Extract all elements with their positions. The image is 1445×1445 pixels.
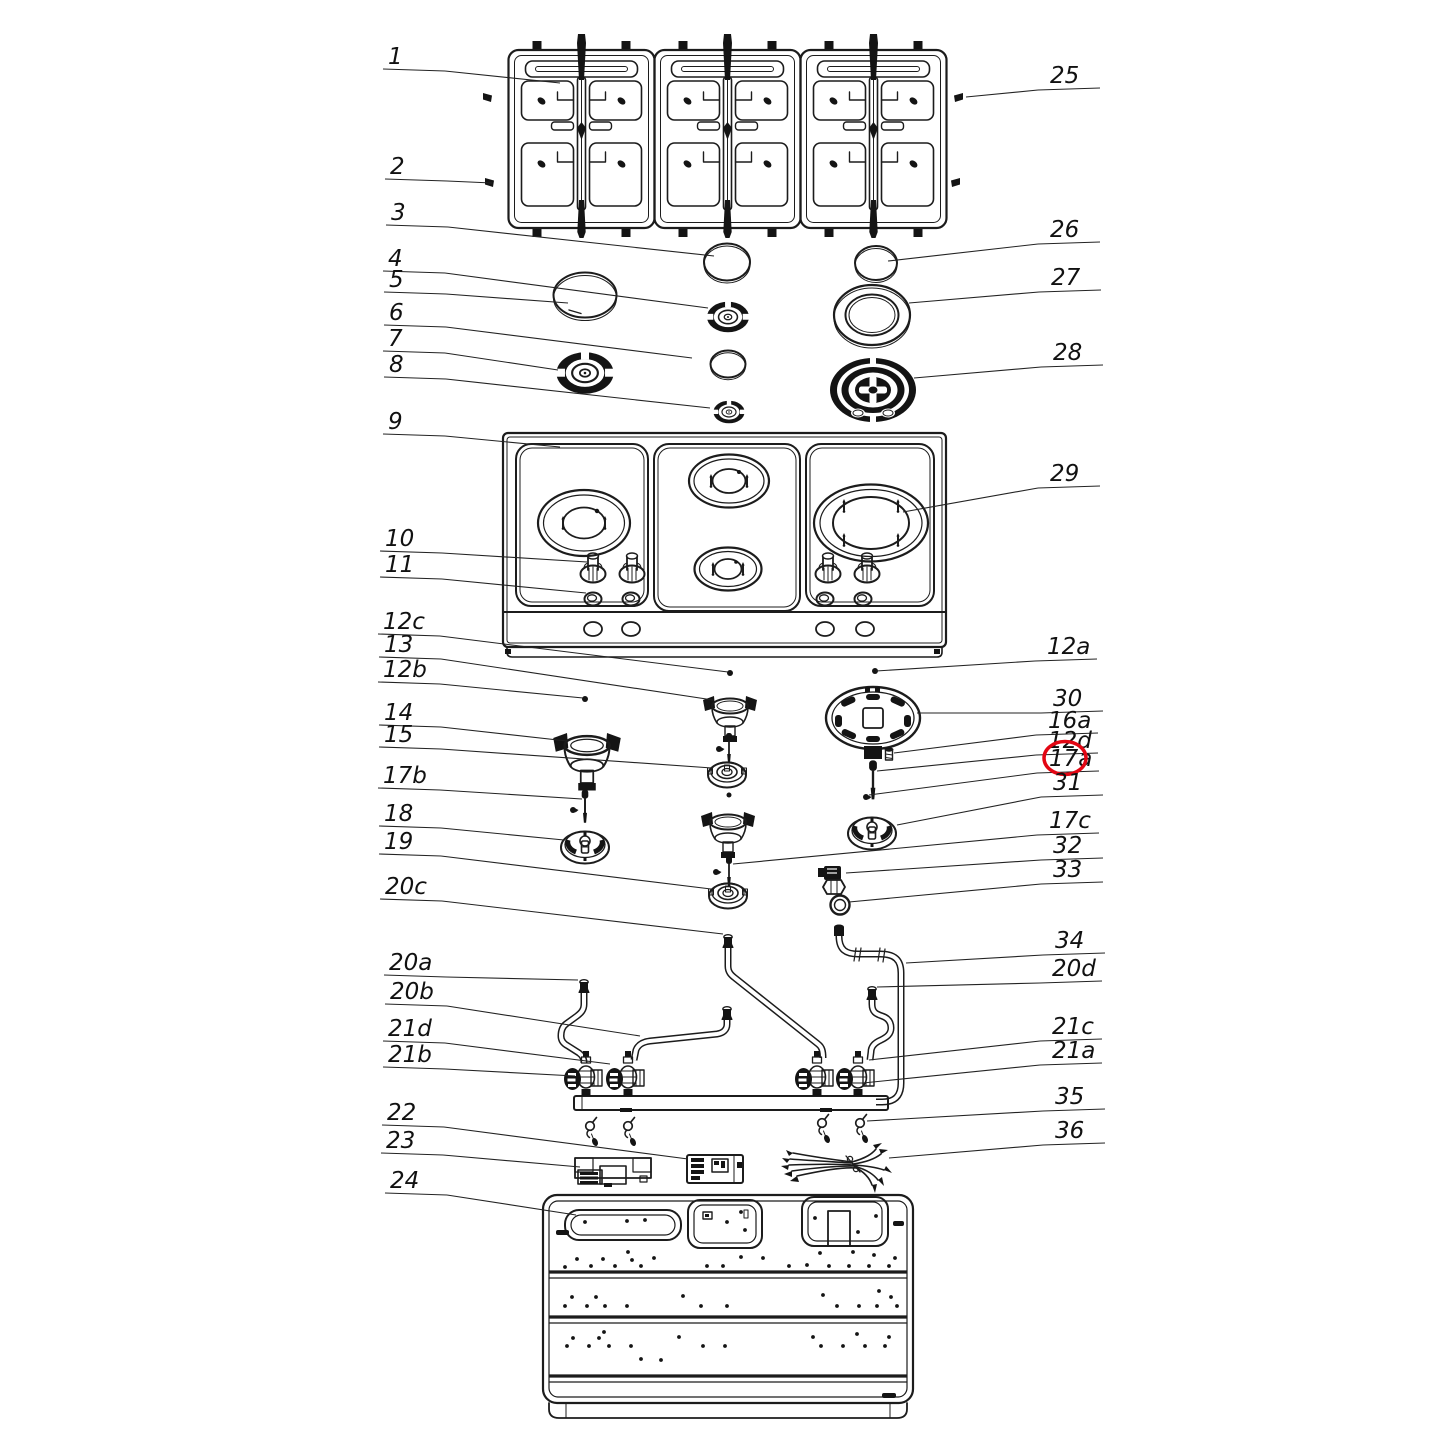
burner-pipe-20c (723, 935, 824, 1058)
venturi-body-auxiliary (701, 812, 755, 858)
clip-1 (586, 1118, 599, 1147)
clip-3 (818, 1115, 831, 1144)
elbow-fitting-32 (818, 866, 845, 894)
burner-base-31 (848, 818, 896, 850)
leader-line-32 (846, 860, 1041, 873)
wok-burner-base-30 (826, 687, 920, 759)
burner-cup-15 (708, 762, 747, 788)
electrode-pin-17b (582, 790, 589, 823)
part-label-34: 34 (1055, 928, 1084, 954)
leader-line-28 (914, 367, 1041, 378)
tray-center-emboss (688, 1200, 762, 1248)
leader-line-18 (441, 828, 564, 840)
manifold-rail (574, 1096, 888, 1110)
wok-ring-cap (834, 285, 910, 348)
leader-line-11 (442, 579, 586, 593)
part-label-27: 27 (1051, 265, 1081, 291)
ring-nut-33 (831, 896, 850, 915)
part-label-31: 31 (1053, 770, 1082, 796)
leader-line-22 (444, 1127, 688, 1159)
apron-hole-4 (856, 622, 874, 636)
screw-12b (582, 696, 588, 702)
leader-line-12b (440, 684, 583, 698)
gas-valve-21a (795, 1051, 833, 1096)
control-knob-3 (816, 553, 841, 583)
burner-opening-auxiliary (695, 548, 762, 591)
burner-pipe-20b (634, 1007, 733, 1060)
leader-line-5 (446, 294, 568, 303)
burner-cap-auxiliary (855, 246, 897, 283)
leader-line-17a (869, 773, 1037, 795)
burner-head-rapid (556, 350, 615, 394)
burner-opening-rapid (538, 490, 630, 556)
part-label-6: 6 (389, 300, 404, 326)
igniter-button-2 (623, 593, 640, 606)
leader-line-31 (897, 797, 1041, 825)
igniter-button-3 (817, 593, 834, 606)
leader-line-17b (440, 790, 582, 799)
part-label-18: 18 (384, 801, 413, 827)
gas-valve-21d (606, 1051, 644, 1096)
part-label-36: 36 (1055, 1118, 1084, 1144)
burner-head-semirapid (706, 300, 749, 332)
apron-hole-2 (622, 622, 640, 636)
part-label-25: 25 (1050, 63, 1079, 89)
leader-line-26 (888, 244, 1038, 261)
apron-hole-3 (816, 622, 834, 636)
leader-line-33 (849, 884, 1041, 902)
exploded-view-diagram: 123456789101112c1312b141517b181920c20a20… (0, 0, 1445, 1445)
leader-line-14 (441, 727, 567, 741)
part-label-20a: 20a (389, 950, 432, 976)
control-knob-4 (855, 553, 880, 583)
leader-line-27 (909, 292, 1039, 303)
burner-cup-19 (709, 883, 748, 909)
cooktop-panel (503, 433, 946, 657)
part-label-10: 10 (385, 526, 414, 552)
leader-line-12c (440, 636, 728, 672)
control-knob-1 (581, 553, 606, 583)
burner-internals (553, 668, 920, 915)
part-label-3: 3 (391, 200, 406, 226)
burner-base-18 (561, 832, 609, 864)
bottom-tray (543, 1195, 913, 1418)
part-label-24: 24 (390, 1168, 419, 1194)
leader-line-36 (889, 1145, 1043, 1158)
screw-12c (727, 670, 733, 676)
electrode-pin-17c (726, 856, 732, 886)
part-label-12b: 12b (383, 657, 427, 683)
igniter-button-4 (855, 593, 872, 606)
part-label-2: 2 (390, 154, 405, 180)
part-label-17c: 17c (1049, 808, 1091, 834)
part-label-9: 9 (388, 409, 403, 435)
part-label-20b: 20b (390, 979, 434, 1005)
part-label-20d: 20d (1052, 956, 1096, 982)
leader-line-21b (445, 1069, 575, 1076)
pan-support-grates (483, 34, 963, 238)
control-knob-2 (620, 553, 645, 583)
part-label-26: 26 (1050, 217, 1079, 243)
leader-line-16a (894, 735, 1036, 753)
leader-line-6 (446, 327, 692, 358)
leader-line-12a (876, 661, 1035, 671)
burner-cap-rapid (554, 273, 617, 321)
apron-hole-1 (584, 622, 602, 636)
screw-16a (885, 747, 894, 760)
part-label-1: 1 (388, 44, 403, 70)
part-label-23: 23 (386, 1128, 415, 1154)
rubber-foot-left-top (483, 93, 492, 102)
tray-rivet-holes (563, 1210, 899, 1362)
pan-support-grate-left (509, 34, 655, 238)
leader-line-34 (906, 955, 1043, 963)
injector-17b (570, 807, 579, 813)
part-label-28: 28 (1053, 340, 1082, 366)
part-label-17b: 17b (383, 763, 427, 789)
part-label-19: 19 (384, 829, 413, 855)
leader-line-15 (441, 749, 712, 768)
gas-piping (561, 925, 901, 1147)
leader-line-20b (447, 1006, 640, 1036)
wire-harness-36 (781, 1143, 892, 1193)
leader-line-7 (445, 353, 558, 370)
burner-opening-semirapid (689, 455, 769, 508)
clip-4 (856, 1115, 869, 1144)
leader-line-17c (733, 835, 1037, 864)
part-label-35: 35 (1055, 1084, 1084, 1110)
leader-line-12d (877, 755, 1036, 771)
part-label-21c: 21c (1052, 1014, 1094, 1040)
pan-support-grate-right (801, 34, 947, 238)
leader-line-24 (447, 1195, 576, 1215)
screw-small (727, 793, 732, 798)
part-label-29: 29 (1050, 461, 1079, 487)
rubber-foot-right-top (954, 93, 963, 102)
leader-line-19 (441, 856, 711, 889)
ignition-unit-22 (687, 1155, 743, 1183)
part-label-12a: 12a (1047, 634, 1090, 660)
burner-pipe-20a (561, 980, 590, 1063)
igniter-button-1 (585, 593, 602, 606)
leader-line-20c (442, 901, 723, 934)
part-label-7: 7 (388, 326, 403, 352)
part-labels: 123456789101112c1312b141517b181920c20a20… (378, 44, 1105, 1215)
part-label-13: 13 (384, 632, 413, 658)
injector-1 (716, 746, 725, 752)
burner-cap-semirapid (704, 244, 750, 284)
part-label-11: 11 (385, 552, 414, 578)
pan-support-grate-center (655, 34, 801, 238)
part-label-32: 32 (1053, 833, 1082, 859)
venturi-body-rapid (553, 733, 621, 791)
part-label-21a: 21a (1052, 1038, 1095, 1064)
leader-line-29 (903, 488, 1038, 512)
tray-right-emboss (802, 1197, 904, 1246)
terminal-block-23 (575, 1158, 651, 1187)
rubber-foot-right-bottom (951, 178, 960, 187)
part-label-21d: 21d (388, 1016, 432, 1042)
diagram-page: 123456789101112c1312b141517b181920c20a20… (0, 0, 1445, 1445)
leader-line-35 (867, 1111, 1043, 1121)
wok-burner-head (830, 358, 916, 423)
burner-pipe-20d (867, 987, 892, 1060)
part-label-15: 15 (384, 722, 413, 748)
burner-cap-small (711, 351, 746, 380)
part-label-20c: 20c (385, 874, 427, 900)
part-label-5: 5 (389, 267, 404, 293)
clip-2 (624, 1118, 637, 1147)
leader-line-25 (966, 90, 1038, 97)
burner-head-auxiliary (713, 400, 745, 424)
burner-opening-wok (814, 485, 928, 562)
leader-line-21c (869, 1041, 1040, 1060)
leader-line-23 (443, 1155, 580, 1167)
leader-line-20a (446, 977, 578, 980)
injector-17c (713, 869, 722, 875)
electrode-pin-1 (726, 733, 732, 763)
part-label-8: 8 (389, 352, 404, 378)
part-label-22: 22 (387, 1100, 416, 1126)
leader-line-4 (445, 273, 708, 308)
leader-line-21a (863, 1065, 1040, 1083)
part-label-33: 33 (1053, 857, 1082, 883)
electrode-pin-12d (869, 760, 877, 799)
tray-divider-bands (549, 1272, 907, 1382)
part-label-21b: 21b (388, 1042, 432, 1068)
